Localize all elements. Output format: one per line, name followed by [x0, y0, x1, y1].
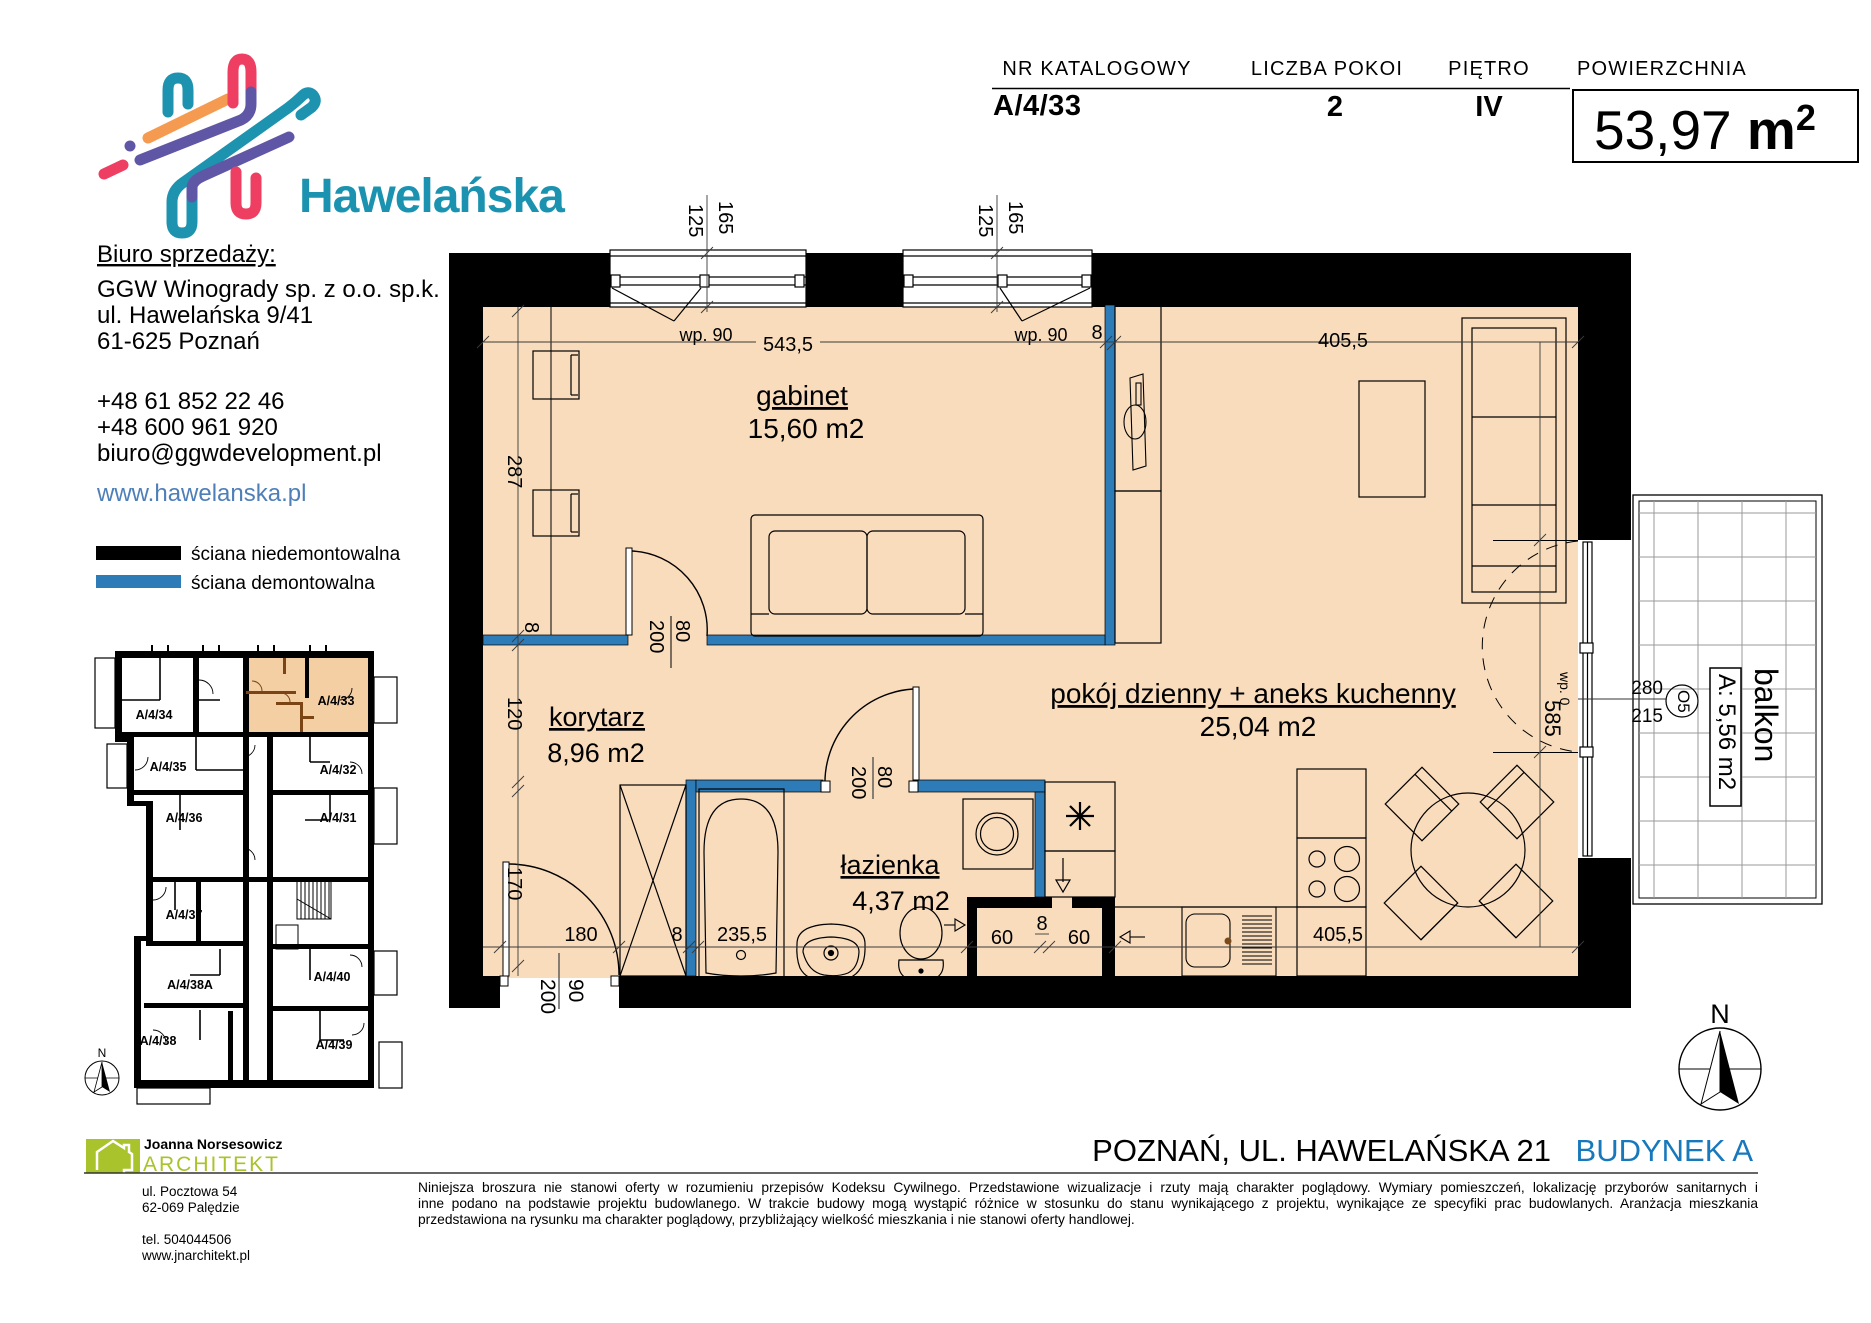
svg-text:60: 60 — [991, 927, 1013, 949]
svg-text:A/4/32: A/4/32 — [320, 763, 357, 777]
svg-text:BUDYNEK A: BUDYNEK A — [1576, 1133, 1754, 1168]
svg-text:A/4/39: A/4/39 — [316, 1038, 353, 1052]
svg-text:25,04 m2: 25,04 m2 — [1200, 711, 1317, 742]
svg-text:215: 215 — [1631, 706, 1663, 727]
svg-text:www.jnarchitekt.pl: www.jnarchitekt.pl — [141, 1248, 250, 1263]
svg-text:8: 8 — [520, 622, 542, 633]
svg-text:A/4/34: A/4/34 — [136, 708, 173, 722]
svg-text:LICZBA POKOI: LICZBA POKOI — [1251, 58, 1403, 80]
svg-text:PIĘTRO: PIĘTRO — [1448, 58, 1530, 80]
svg-text:gabinet: gabinet — [756, 380, 848, 411]
svg-text:POZNAŃ, UL. HAWELAŃSKA 21: POZNAŃ, UL. HAWELAŃSKA 21 — [1092, 1133, 1551, 1168]
svg-text:wp. 0: wp. 0 — [1557, 671, 1573, 706]
svg-text:łazienka: łazienka — [840, 850, 940, 880]
svg-text:IV: IV — [1475, 91, 1503, 123]
svg-text:www.hawelanska.pl: www.hawelanska.pl — [96, 480, 306, 507]
svg-text:62-069 Palędzie: 62-069 Palędzie — [142, 1200, 240, 1215]
svg-text:15,60 m2: 15,60 m2 — [748, 413, 865, 444]
svg-text:wp. 90: wp. 90 — [678, 325, 732, 345]
svg-text:200: 200 — [536, 979, 559, 1014]
svg-text:90: 90 — [564, 979, 587, 1002]
svg-text:125: 125 — [684, 204, 706, 237]
svg-text:A/4/31: A/4/31 — [320, 811, 357, 825]
svg-text:A/4/36: A/4/36 — [166, 811, 203, 825]
svg-text:N: N — [1710, 999, 1730, 1029]
svg-text:543,5: 543,5 — [763, 334, 813, 356]
svg-text:8: 8 — [1036, 913, 1047, 935]
svg-text:korytarz: korytarz — [549, 702, 645, 732]
svg-text:180: 180 — [564, 924, 597, 946]
svg-text:A: 5,56 m2: A: 5,56 m2 — [1713, 674, 1740, 790]
svg-text:balkon: balkon — [1748, 668, 1784, 762]
svg-text:ściana demontowalna: ściana demontowalna — [191, 573, 375, 594]
svg-text:80: 80 — [873, 766, 895, 788]
svg-text:+48 600 961 920: +48 600 961 920 — [97, 414, 278, 441]
svg-text:A/4/37: A/4/37 — [166, 908, 203, 922]
svg-text:GGW Winogrady sp. z o.o. sp.k.: GGW Winogrady sp. z o.o. sp.k. — [97, 276, 440, 303]
svg-text:N: N — [98, 1046, 107, 1060]
svg-text:405,5: 405,5 — [1313, 924, 1363, 946]
svg-text:60: 60 — [1068, 927, 1090, 949]
svg-text:tel. 504044506: tel. 504044506 — [142, 1232, 231, 1247]
svg-text:Joanna Norsesowicz: Joanna Norsesowicz — [144, 1136, 283, 1152]
svg-text:200: 200 — [847, 766, 869, 799]
svg-text:ściana niedemontowalna: ściana niedemontowalna — [191, 544, 401, 565]
svg-text:A/4/38A: A/4/38A — [167, 978, 213, 992]
svg-text:Hawelańska: Hawelańska — [299, 170, 565, 223]
svg-text:80: 80 — [671, 620, 693, 642]
svg-text:+48 61 852 22 46: +48 61 852 22 46 — [97, 388, 285, 415]
svg-text:A/4/35: A/4/35 — [150, 760, 187, 774]
svg-text:biuro@ggwdevelopment.pl: biuro@ggwdevelopment.pl — [97, 440, 382, 467]
svg-text:125: 125 — [974, 204, 996, 237]
svg-text:A/4/38: A/4/38 — [140, 1034, 177, 1048]
svg-text:A/4/40: A/4/40 — [314, 970, 351, 984]
svg-text:pokój dzienny + aneks kuchenny: pokój dzienny + aneks kuchenny — [1050, 678, 1456, 709]
svg-text:A/4/33: A/4/33 — [318, 694, 355, 708]
svg-text:8: 8 — [671, 924, 682, 946]
svg-text:8,96 m2: 8,96 m2 — [547, 738, 645, 768]
svg-text:8: 8 — [1091, 322, 1102, 344]
svg-text:O5: O5 — [1674, 690, 1693, 713]
svg-text:405,5: 405,5 — [1318, 330, 1368, 352]
svg-text:4,37 m2: 4,37 m2 — [852, 886, 950, 916]
svg-text:585: 585 — [1540, 700, 1565, 737]
svg-text:280: 280 — [1631, 678, 1663, 699]
svg-text:ul. Pocztowa 54: ul. Pocztowa 54 — [142, 1184, 238, 1199]
svg-text:A/4/33: A/4/33 — [993, 90, 1081, 122]
svg-text:POWIERZCHNIA: POWIERZCHNIA — [1577, 58, 1747, 80]
svg-text:287: 287 — [503, 455, 525, 488]
svg-text:165: 165 — [714, 201, 736, 234]
svg-text:165: 165 — [1004, 201, 1026, 234]
svg-text:2: 2 — [1327, 91, 1343, 123]
svg-text:170: 170 — [503, 867, 525, 900]
svg-text:200: 200 — [645, 620, 667, 653]
svg-text:235,5: 235,5 — [717, 924, 767, 946]
svg-text:ul. Hawelańska 9/41: ul. Hawelańska 9/41 — [97, 302, 313, 329]
svg-text:NR KATALOGOWY: NR KATALOGOWY — [1002, 58, 1191, 80]
svg-text:61-625 Poznań: 61-625 Poznań — [97, 328, 260, 355]
svg-text:53,97 m2: 53,97 m2 — [1594, 97, 1816, 161]
svg-text:wp. 90: wp. 90 — [1013, 325, 1067, 345]
svg-text:Biuro sprzedaży:: Biuro sprzedaży: — [97, 241, 276, 268]
svg-text:120: 120 — [503, 697, 525, 730]
